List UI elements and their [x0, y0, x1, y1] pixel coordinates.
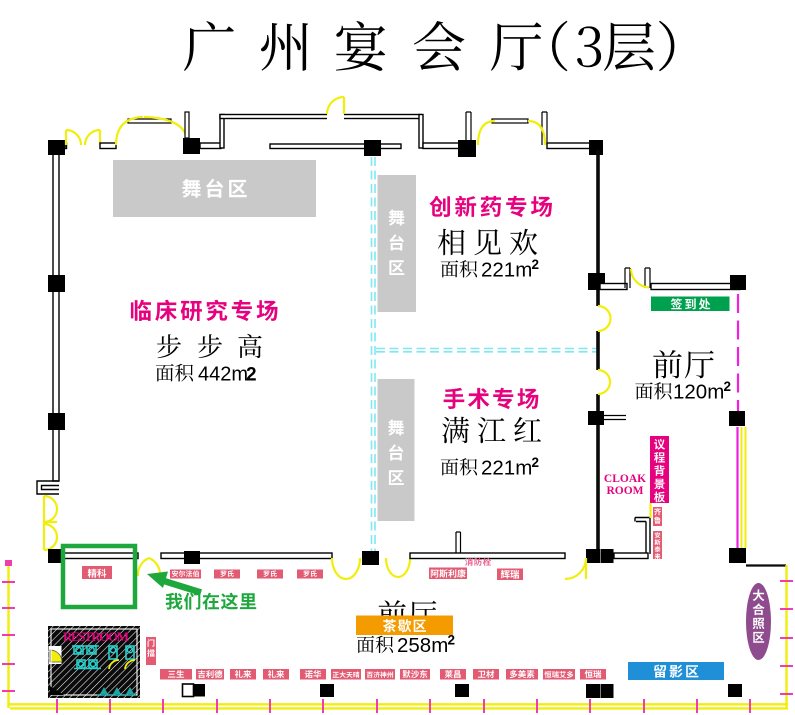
svg-text:ROOM: ROOM	[606, 485, 643, 497]
svg-text:120m: 120m	[673, 381, 724, 404]
svg-text:258m: 258m	[397, 634, 448, 657]
svg-text:CLOAK: CLOAK	[604, 473, 646, 485]
svg-text:2: 2	[246, 365, 257, 386]
svg-text:2: 2	[532, 257, 540, 272]
svg-text:221m: 221m	[481, 457, 532, 480]
svg-text:2: 2	[724, 379, 732, 394]
svg-text:221m: 221m	[481, 259, 532, 282]
svg-text:2: 2	[532, 455, 540, 470]
svg-text:RESTROOM: RESTROOM	[63, 629, 129, 644]
svg-text:442m: 442m	[198, 364, 248, 386]
